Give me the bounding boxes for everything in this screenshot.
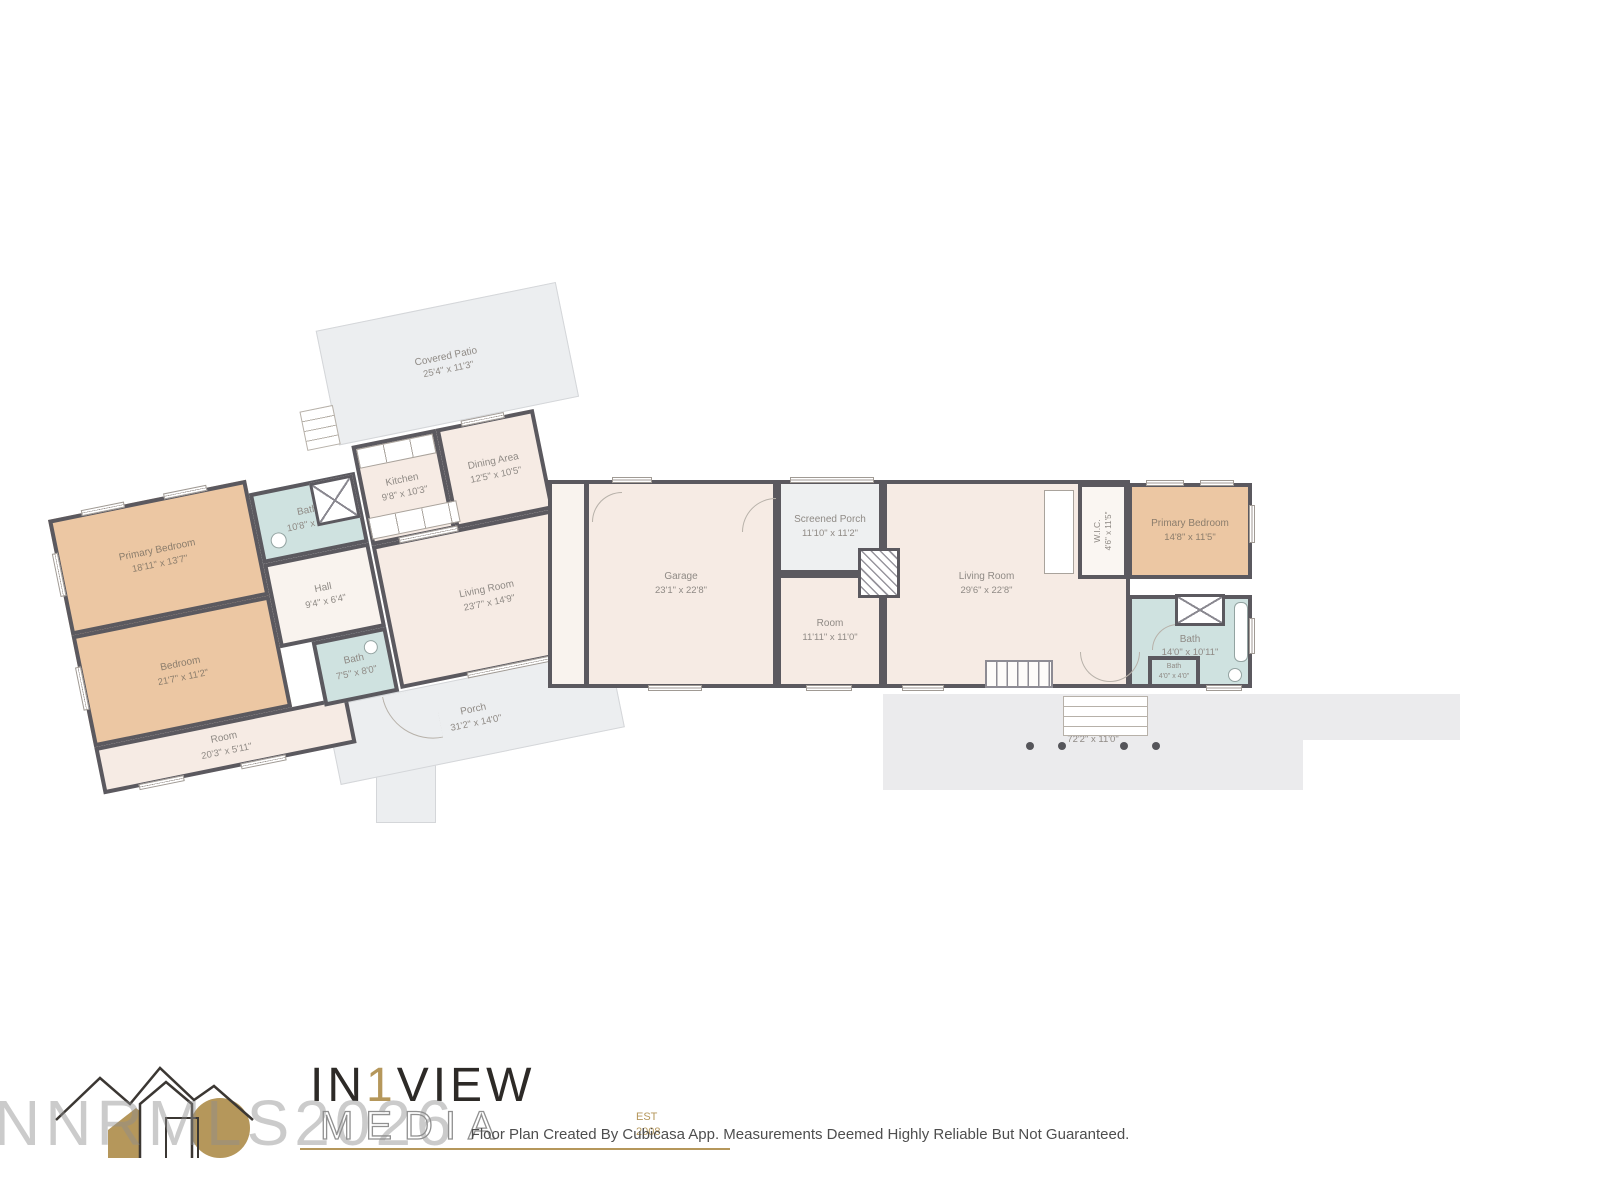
connector-hall xyxy=(548,480,588,688)
porch-post xyxy=(1026,742,1034,750)
right-porch-slab-ext xyxy=(1303,694,1460,740)
covered-patio: Covered Patio25'4" x 11'3" xyxy=(316,282,579,445)
footer-disclaimer: Floor Plan Created By Cubicasa App. Meas… xyxy=(0,1126,1600,1143)
toilet-icon xyxy=(1228,668,1242,682)
bathtub-icon xyxy=(1234,602,1248,662)
window xyxy=(1249,618,1255,654)
window xyxy=(612,477,652,483)
window xyxy=(790,477,874,483)
window xyxy=(1206,685,1242,691)
right-bath-small: Bath4'0" x 4'0" xyxy=(1148,656,1200,688)
left-hall-label: Hall9'4" x 6'4" xyxy=(268,547,382,643)
staircase-icon xyxy=(985,660,1053,688)
right-primary-bedroom: Primary Bedroom14'8" x 11'5" xyxy=(1128,483,1252,579)
porch-post xyxy=(1058,742,1066,750)
window xyxy=(648,685,702,691)
left-bath-2-label: Bath7'5" x 8'0" xyxy=(316,631,394,701)
covered-patio-label: Covered Patio25'4" x 11'3" xyxy=(317,283,578,444)
porch-post xyxy=(1120,742,1128,750)
shower-icon xyxy=(309,474,361,526)
window xyxy=(806,685,852,691)
right-primary-bedroom-label: Primary Bedroom14'8" x 11'5" xyxy=(1132,487,1248,575)
mls-watermark: NNRMLS2026 xyxy=(0,1086,457,1160)
porch-steps xyxy=(1063,696,1148,736)
window xyxy=(902,685,944,691)
window xyxy=(1249,505,1255,543)
stair-hatch-icon xyxy=(858,548,900,598)
porch-post xyxy=(1152,742,1160,750)
walk-in-closet: W.I.C.4'6" x 11'5" xyxy=(1078,483,1128,579)
window xyxy=(1146,480,1184,486)
closet-x-icon xyxy=(1175,594,1225,626)
floor-plan-canvas: Covered Patio25'4" x 11'3" Porch31'2" x … xyxy=(0,0,1600,1200)
window xyxy=(1200,480,1234,486)
closet-shelf-icon xyxy=(1044,490,1074,574)
right-bath-small-label: Bath4'0" x 4'0" xyxy=(1152,660,1196,684)
